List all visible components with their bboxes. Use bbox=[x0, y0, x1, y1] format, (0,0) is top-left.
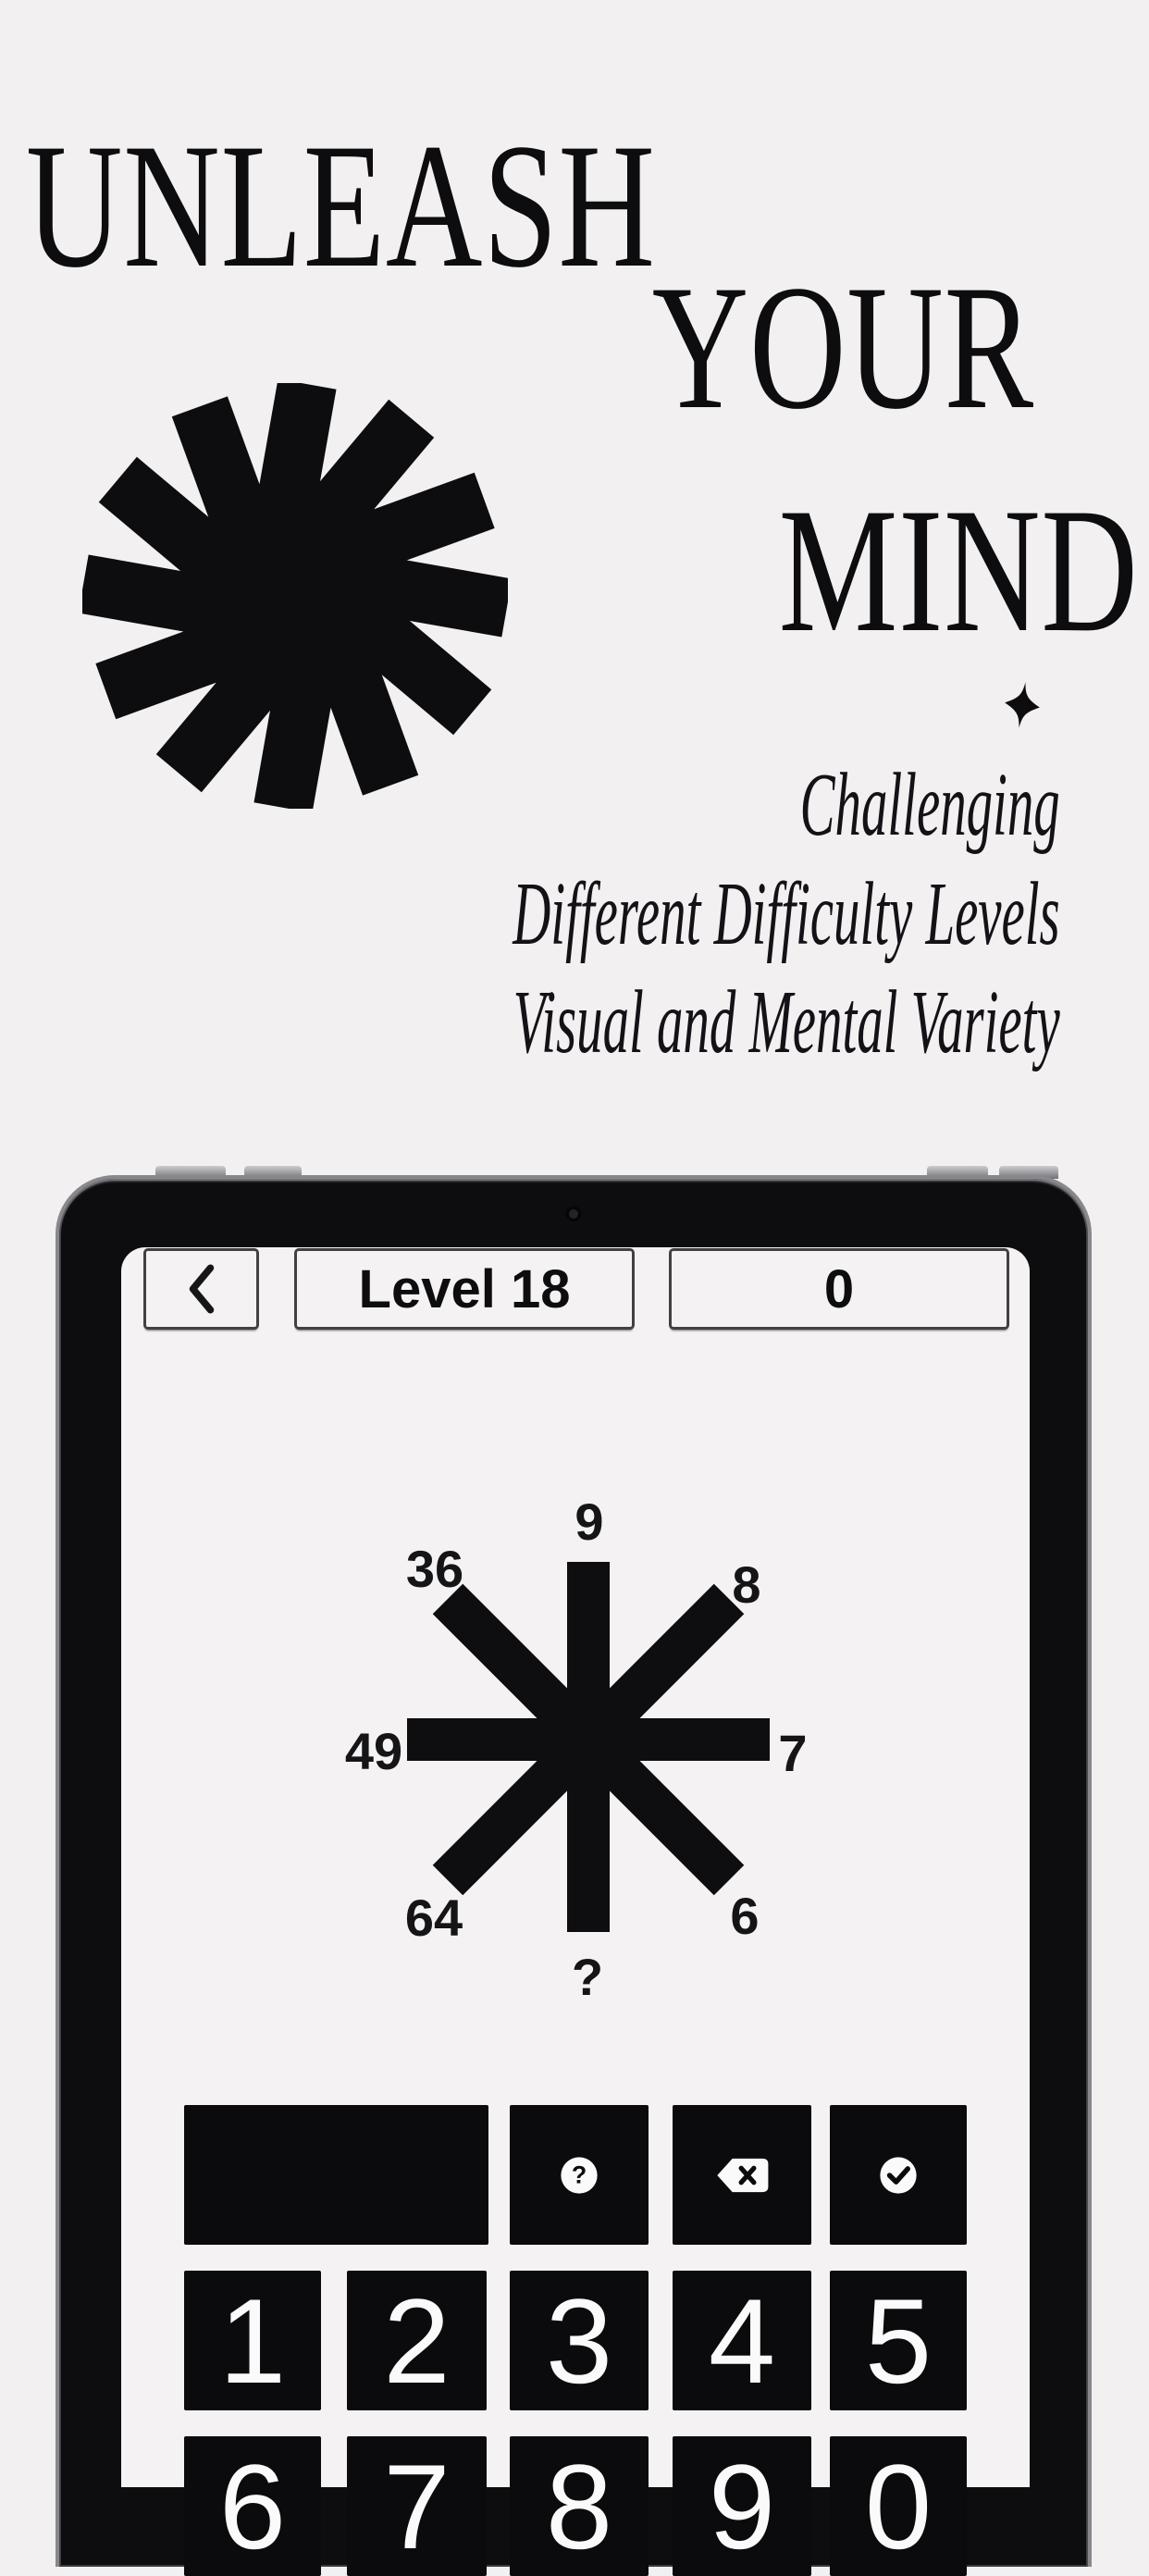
digit-key-1[interactable]: 1 bbox=[184, 2271, 321, 2410]
puzzle-value-bottom-unknown: ? bbox=[572, 1948, 603, 2006]
hero-title-line-2: YOUR bbox=[652, 258, 1034, 437]
question-circle-icon: ? bbox=[559, 2155, 599, 2196]
check-circle-icon bbox=[878, 2155, 919, 2196]
puzzle-figure: 9 36 8 49 7 64 6 ? bbox=[283, 1434, 894, 2045]
digit-key-5[interactable]: 5 bbox=[830, 2271, 967, 2410]
digit-key-4[interactable]: 4 bbox=[673, 2271, 811, 2410]
answer-display bbox=[184, 2105, 488, 2245]
digit-key-6[interactable]: 6 bbox=[184, 2436, 321, 2576]
backspace-button[interactable] bbox=[673, 2105, 811, 2245]
chevron-left-icon bbox=[186, 1262, 217, 1316]
puzzle-value-top-left: 36 bbox=[406, 1540, 463, 1598]
level-label: Level 18 bbox=[359, 1258, 571, 1320]
digit-key-3[interactable]: 3 bbox=[510, 2271, 649, 2410]
level-badge: Level 18 bbox=[294, 1248, 635, 1330]
feature-line-3: Visual and Mental Variety bbox=[513, 969, 1060, 1078]
puzzle-value-top-right: 8 bbox=[732, 1555, 760, 1614]
hero-title-line-1: UNLEASH bbox=[26, 117, 656, 295]
hero-title-line-3: MIND bbox=[779, 481, 1139, 660]
digit-key-7[interactable]: 7 bbox=[347, 2436, 487, 2576]
digit-key-2[interactable]: 2 bbox=[347, 2271, 487, 2410]
puzzle-value-top: 9 bbox=[574, 1492, 603, 1551]
puzzle-value-bottom-left: 64 bbox=[405, 1889, 463, 1947]
svg-text:?: ? bbox=[572, 2161, 587, 2188]
score-badge: 0 bbox=[669, 1248, 1009, 1330]
backspace-icon bbox=[713, 2156, 771, 2195]
back-button[interactable] bbox=[143, 1248, 259, 1330]
sparkle-icon bbox=[998, 679, 1047, 731]
feature-list: Challenging Different Difficulty Levels … bbox=[513, 751, 1060, 1078]
asterisk-shape bbox=[407, 1562, 770, 1932]
feature-line-2: Different Difficulty Levels bbox=[513, 861, 1060, 970]
digit-key-8[interactable]: 8 bbox=[510, 2436, 649, 2576]
tablet-camera bbox=[565, 1206, 582, 1222]
feature-line-1: Challenging bbox=[513, 751, 1060, 861]
confirm-button[interactable] bbox=[830, 2105, 967, 2245]
help-button[interactable]: ? bbox=[510, 2105, 649, 2245]
puzzle-value-right: 7 bbox=[778, 1724, 807, 1782]
puzzle-value-left: 49 bbox=[345, 1722, 402, 1780]
score-value: 0 bbox=[824, 1258, 854, 1320]
puzzle-value-bottom-right: 6 bbox=[730, 1887, 759, 1945]
starburst-pinwheel-icon bbox=[82, 383, 508, 809]
digit-key-9[interactable]: 9 bbox=[673, 2436, 811, 2576]
digit-key-0[interactable]: 0 bbox=[830, 2436, 967, 2576]
